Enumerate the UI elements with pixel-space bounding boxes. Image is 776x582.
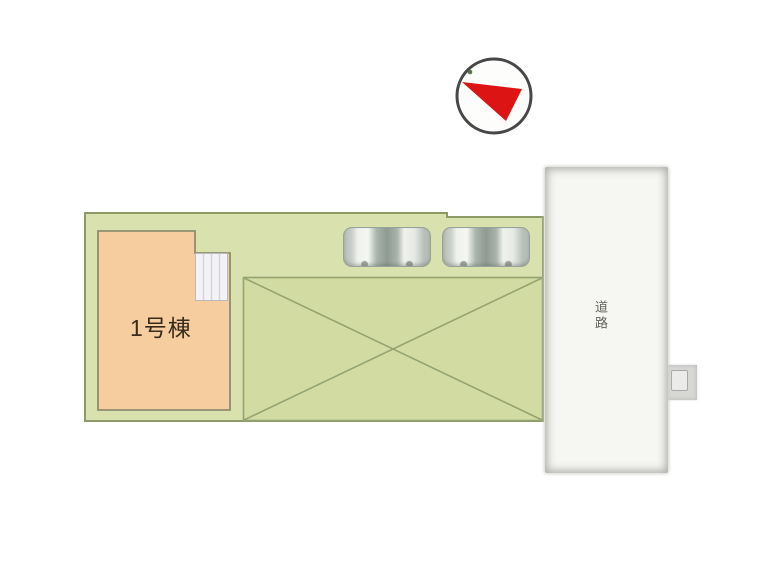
utility-marker-box: [671, 370, 688, 391]
compass-icon: [450, 52, 540, 142]
road-label: 道路: [591, 300, 610, 332]
utility-marker: [666, 365, 697, 400]
road-strip: 道路: [545, 167, 668, 473]
building-label: 1号棟: [130, 312, 240, 344]
car-icon: [343, 227, 431, 267]
car-icon: [442, 227, 530, 267]
site-plan-canvas: 道路 1号棟: [0, 0, 776, 582]
